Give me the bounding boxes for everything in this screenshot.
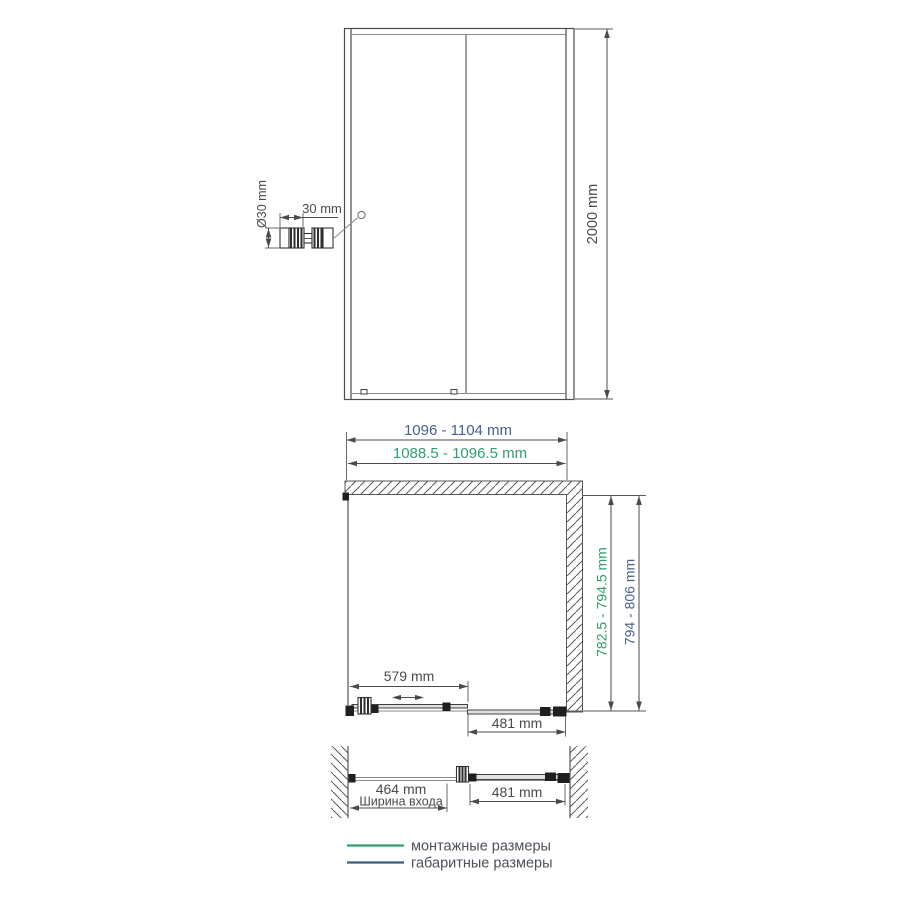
handle-diameter-label: Ø30 mm	[255, 180, 269, 228]
dimension-handle-width: 30 mm	[280, 201, 342, 227]
overall-depth-label: 794 - 806 mm	[622, 559, 638, 645]
roller-block-2	[443, 703, 451, 712]
handle-right-cap	[323, 228, 333, 248]
dimension-height-2000: 2000 mm	[575, 29, 613, 399]
wall-hatch-plan	[345, 481, 583, 712]
dimension-sliding-door-width: 579 mm	[350, 668, 468, 702]
bottom-guide-left	[361, 390, 367, 395]
dimension-fixed-panel-plan: 481 mm	[468, 714, 566, 737]
front-view	[345, 29, 575, 400]
handle-mount-circle	[358, 211, 365, 218]
fixed-panel-plan-label: 481 mm	[492, 715, 543, 731]
fixed-panel-open-label: 481 mm	[492, 784, 543, 800]
plan-view: 1096 - 1104 mm 1088.5 - 1096.5 mm 782.5 …	[343, 422, 647, 737]
overall-width-label: 1096 - 1104 mm	[404, 422, 512, 439]
handle-detail	[280, 218, 358, 248]
slide-direction-arrow	[392, 695, 424, 700]
handle-knob-open	[457, 767, 469, 783]
legend-overall-label: габаритные размеры	[411, 856, 553, 872]
bottom-guide-right	[451, 390, 457, 395]
handle-width-label: 30 mm	[302, 201, 342, 216]
wall-profile-corner-block	[343, 493, 350, 501]
wall-profile-right-block	[553, 707, 567, 717]
height-dimension-label: 2000 mm	[585, 184, 601, 244]
sliding-door-width-label: 579 mm	[384, 668, 435, 684]
handle-knob-plan	[358, 698, 371, 715]
roller-block-1	[372, 705, 379, 713]
dimension-handle-diameter: Ø30 mm	[255, 180, 280, 248]
wall-hatch-left	[331, 746, 348, 818]
mounting-width-label: 1088.5 - 1096.5 mm	[393, 445, 527, 462]
legend: монтажные размеры габаритные размеры	[347, 839, 553, 872]
entrance-caption-label: Ширина входа	[359, 795, 442, 809]
shower-door-technical-drawing: 2000 mm Ø30 mm 30 mm	[0, 0, 900, 900]
door-outer-frame	[345, 29, 575, 400]
dimension-overall-depth: 794 - 806 mm	[622, 496, 642, 712]
handle-leader-line	[333, 218, 358, 239]
legend-mounting-label: монтажные размеры	[411, 839, 551, 855]
roller-block-open-1	[469, 774, 477, 782]
wall-bracket-right	[558, 773, 570, 783]
mounting-depth-label: 782.5 - 794.5 mm	[594, 547, 610, 657]
dimension-entrance-width: 464 mm Ширина входа	[350, 781, 447, 812]
wall-profile-left-block	[346, 706, 355, 717]
door-assembly-closed	[346, 698, 567, 717]
roller-block-open-2	[545, 773, 556, 782]
wall-bracket-left	[349, 774, 356, 783]
handle-left-cap	[280, 228, 289, 248]
dimension-mounting-width: 1088.5 - 1096.5 mm	[348, 445, 566, 466]
open-view: 464 mm Ширина входа 481 mm	[331, 746, 588, 818]
wall-hatch-right	[570, 746, 588, 818]
dimension-fixed-panel-open: 481 mm	[470, 784, 565, 806]
